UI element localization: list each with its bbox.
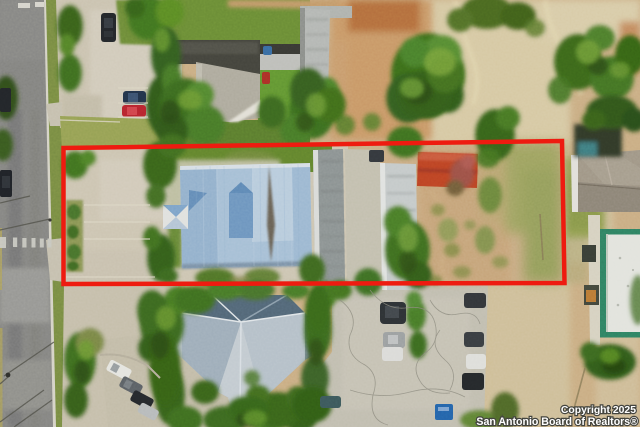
svg-text:Copyright 2025: Copyright 2025 — [561, 405, 636, 416]
svg-text:San Antonio Board of Realtors®: San Antonio Board of Realtors® — [476, 416, 638, 427]
